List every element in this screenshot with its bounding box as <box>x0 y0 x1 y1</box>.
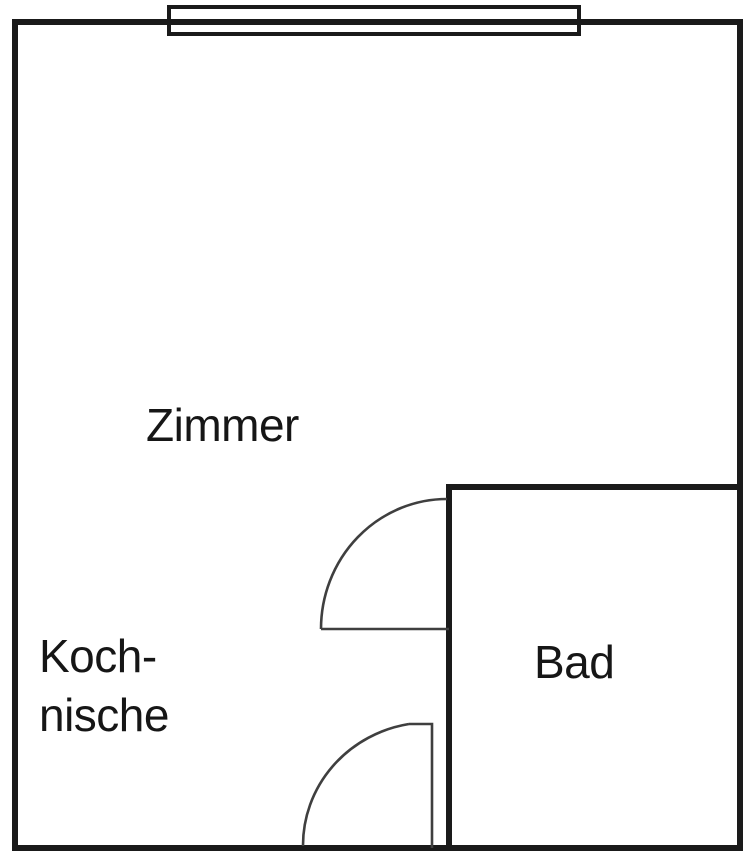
room-label-bad: Bad <box>534 636 614 688</box>
room-label-kochnische-line1: Koch- <box>39 630 157 682</box>
entrance-door-swing-arc <box>303 724 409 846</box>
room-label-kochnische-line2: nische <box>39 689 169 741</box>
room-label-zimmer: Zimmer <box>146 399 299 451</box>
entrance-door-leaf <box>409 724 432 848</box>
floorplan-drawing: Zimmer Koch- nische Bad <box>0 0 750 858</box>
bathroom-door-swing-arc <box>321 499 447 629</box>
floorplan-page: Zimmer Koch- nische Bad <box>0 0 750 858</box>
